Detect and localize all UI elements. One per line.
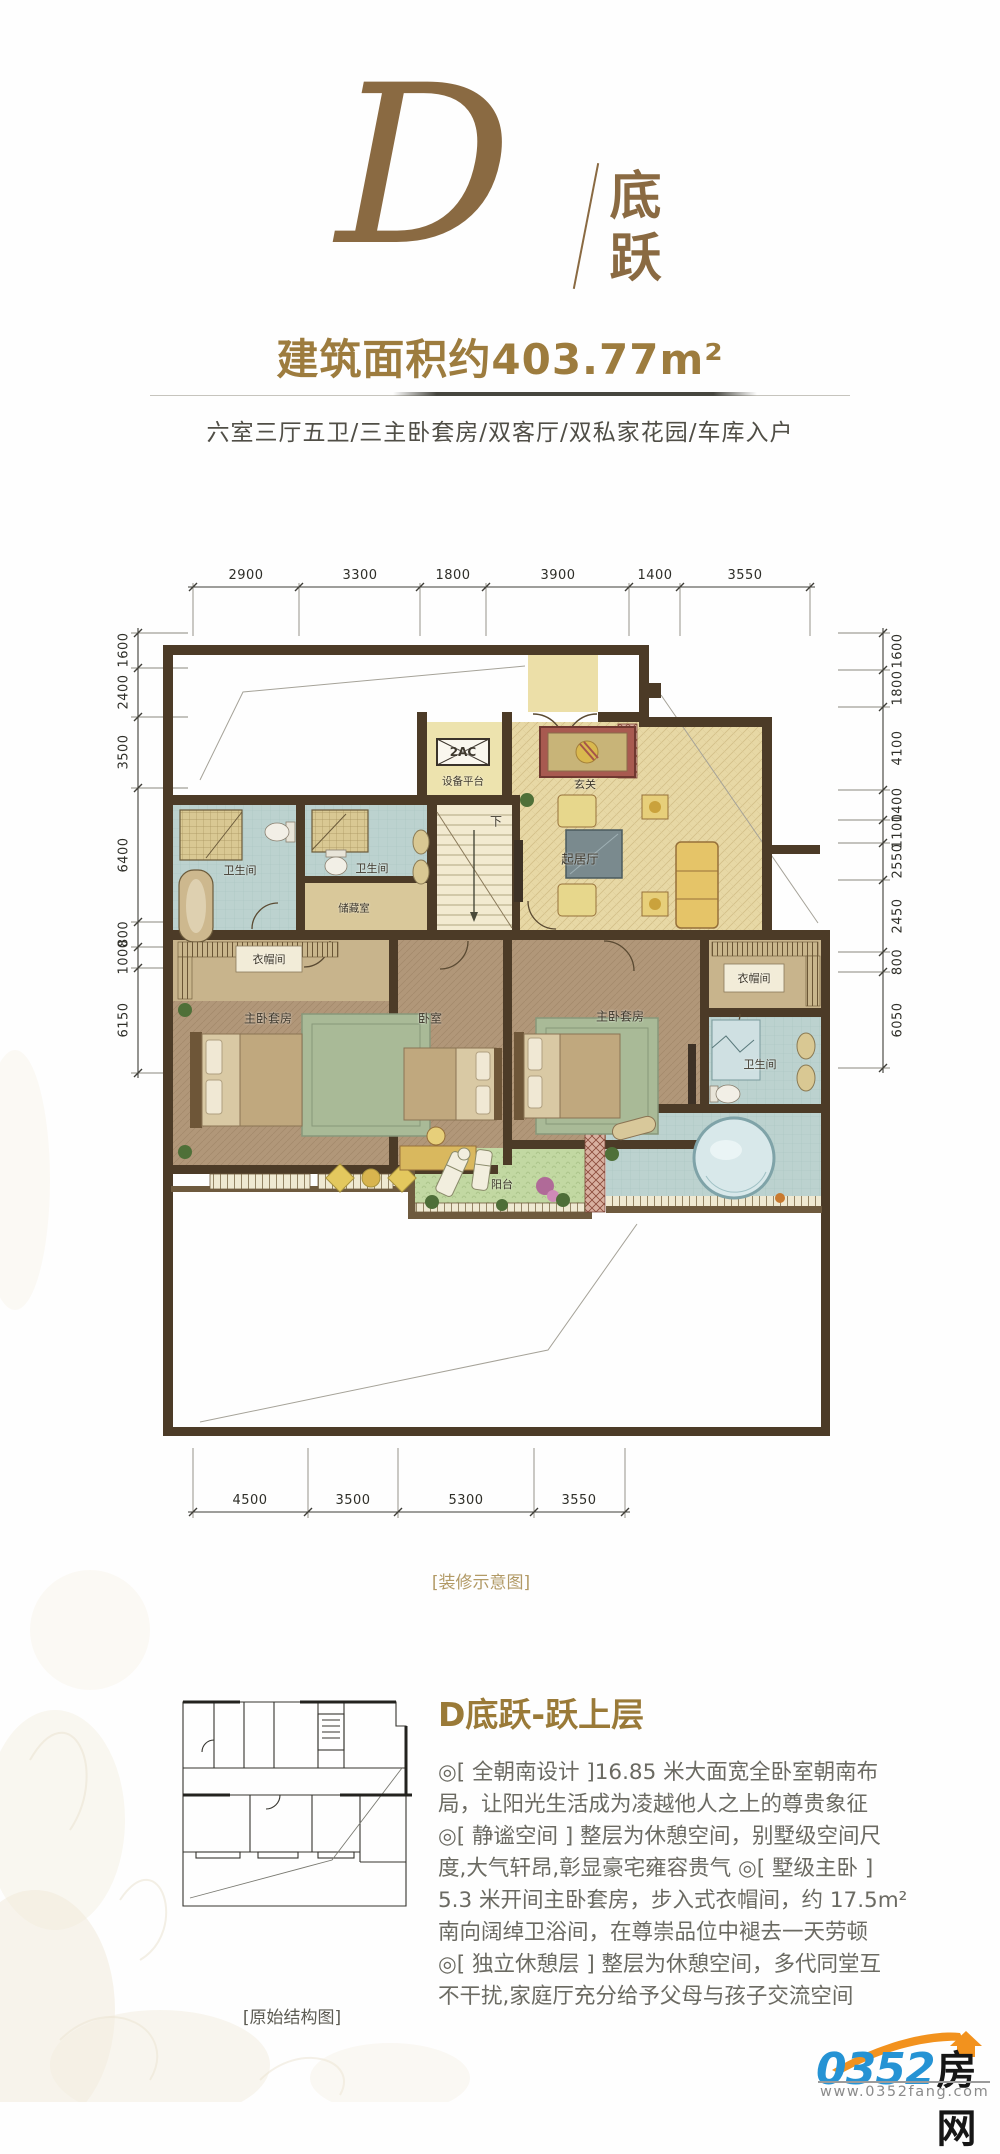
room-label-living: 起居厅 (561, 849, 599, 868)
room-label-closet: 衣帽间 (738, 970, 771, 986)
tagline: 六室三厅五卫/三主卧套房/双客厅/双私家花园/车库入户 (0, 413, 1000, 447)
room-label-bath: 卫生间 (224, 862, 257, 878)
dimension-label: 6050 (891, 1002, 906, 1037)
details-paragraph-line: 不干扰,家庭厅充分给予父母与孩子交流空间 (438, 1981, 908, 2013)
logo-underline (818, 2081, 990, 2083)
dimension-label: 1000 (117, 939, 132, 974)
room-label-ac: 2AC (450, 745, 476, 759)
room-label-master: 主卧套房 (244, 1010, 292, 1027)
room-label-equipment: 设备平台 (442, 774, 484, 789)
thumbnail-graphic (183, 1702, 412, 1906)
dimension-label: 3900 (540, 568, 575, 583)
room-label-closet: 衣帽间 (253, 951, 286, 967)
details-paragraph-line: 度,大气轩昂,彰显豪宅雍容贵气 ◎[ 墅级主卧 ] (438, 1853, 908, 1885)
dimension-label: 5300 (448, 1493, 483, 1508)
room-label-storage: 储藏室 (338, 901, 370, 916)
details-paragraph-line: ◎[ 全朝南设计 ]16.85 米大面宽全卧室朝南布 (438, 1757, 908, 1789)
dimension-label: 4500 (232, 1493, 267, 1508)
dimension-label: 3300 (342, 568, 377, 583)
details-title: D底跃-跃上层 (438, 1688, 644, 1736)
dimension-label: 1800 (435, 568, 470, 583)
details-paragraph-line: 局，让阳光生活成为凌越他人之上的尊贵象征 (438, 1789, 908, 1821)
room-label-bedroom: 卧室 (418, 1010, 442, 1027)
room-label-balcony: 阳台 (491, 1176, 513, 1192)
logo-url: www.0352fang.com (820, 2084, 989, 2100)
dimension-label: 6150 (117, 1002, 132, 1037)
details-paragraph: ◎[ 全朝南设计 ]16.85 米大面宽全卧室朝南布 局，让阳光生活成为凌越他人… (438, 1757, 908, 2013)
dimension-label: 2450 (891, 898, 906, 933)
room-label-foyer: 玄关 (574, 776, 596, 792)
thumbnail-caption: [原始结构图] (243, 2003, 341, 2028)
details-paragraph-line: 5.3 米开间主卧套房，步入式衣帽间，约 17.5m² (438, 1885, 908, 1917)
details-paragraph-line: ◎[ 独立休憩层 ] 整层为休憩空间，多代同堂互 (438, 1949, 908, 1981)
dimension-label: 4100 (891, 730, 906, 765)
dimension-label: 3500 (117, 734, 132, 769)
dimension-label: 3500 (335, 1493, 370, 1508)
dimension-label: 6400 (117, 837, 132, 872)
background-texture (0, 1050, 470, 2102)
room-label-master: 主卧套房 (596, 1008, 644, 1025)
dimension-label: 2900 (228, 568, 263, 583)
plan-caption: [装修示意图] (432, 1568, 530, 1593)
dimension-label: 1600 (891, 633, 906, 668)
dimension-label: 1800 (891, 670, 906, 705)
dimension-label: 800 (891, 949, 906, 975)
dimension-label: 3550 (561, 1493, 596, 1508)
details-paragraph-line: ◎[ 静谧空间 ] 整层为休憩空间，别墅级空间尺 (438, 1821, 908, 1853)
divider-accent (393, 392, 757, 396)
details-paragraph-line: 南向阔绰卫浴间，在尊崇品位中褪去一天劳顿 (438, 1917, 908, 1949)
flyer-page: { "brand": { "letter": "D", "name_vertic… (0, 0, 1000, 2102)
dimension-label: 2400 (117, 674, 132, 709)
brand-letter: D (336, 56, 512, 276)
dimension-label: 1400 (637, 568, 672, 583)
dimension-label: 1600 (117, 632, 132, 667)
brand-name-vertical: 底跃 (604, 168, 656, 292)
room-label-bath: 卫生间 (356, 860, 389, 876)
room-label-stairs-down: 下 (490, 813, 502, 830)
dimension-label: 2550 (891, 843, 906, 878)
area-title: 建筑面积约403.77m² (0, 326, 1000, 387)
room-label-bath: 卫生间 (744, 1056, 777, 1072)
dimension-label: 3550 (727, 568, 762, 583)
